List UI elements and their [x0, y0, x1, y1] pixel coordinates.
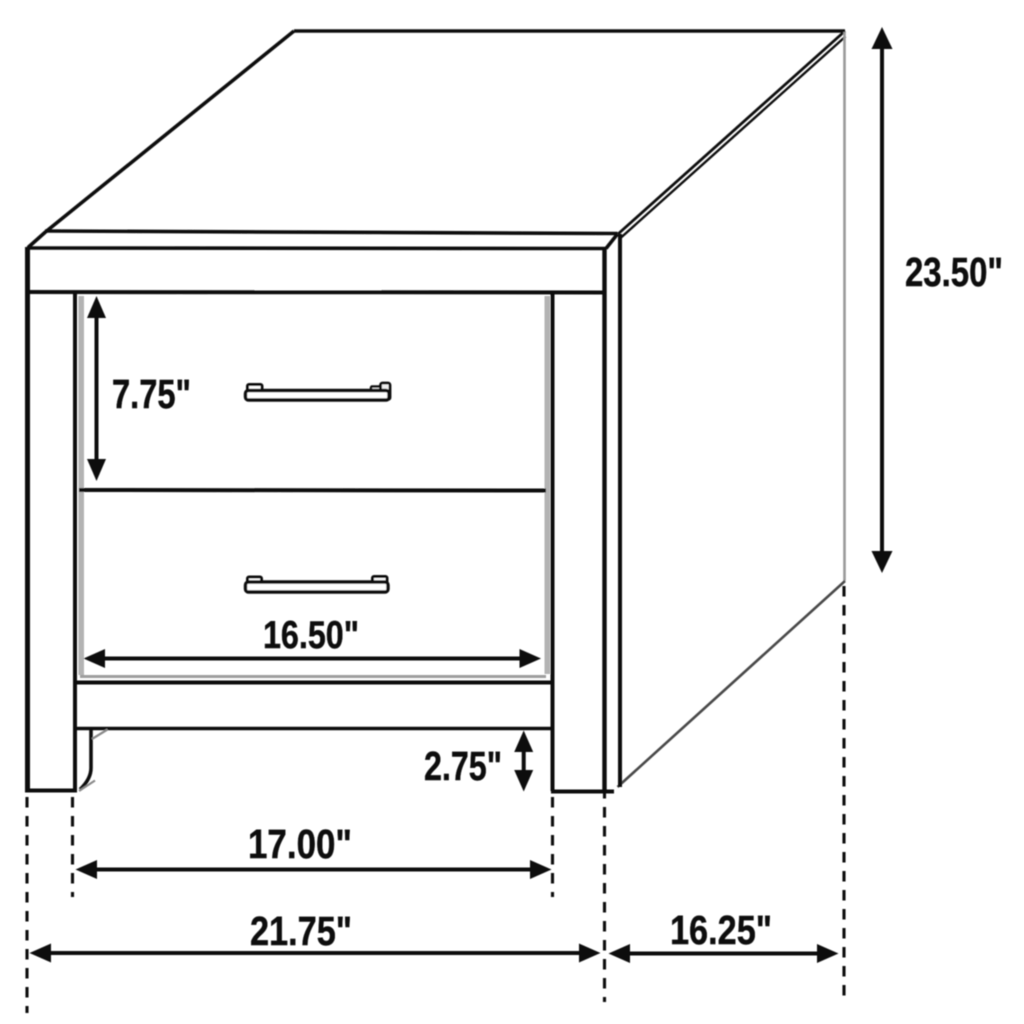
- svg-text:2.75": 2.75": [424, 743, 502, 789]
- svg-text:16.25": 16.25": [670, 907, 772, 953]
- svg-text:21.75": 21.75": [250, 908, 352, 954]
- svg-text:17.00": 17.00": [248, 821, 352, 867]
- svg-text:23.50": 23.50": [905, 249, 1003, 295]
- svg-text:7.75": 7.75": [112, 371, 191, 417]
- svg-text:16.50": 16.50": [263, 614, 359, 657]
